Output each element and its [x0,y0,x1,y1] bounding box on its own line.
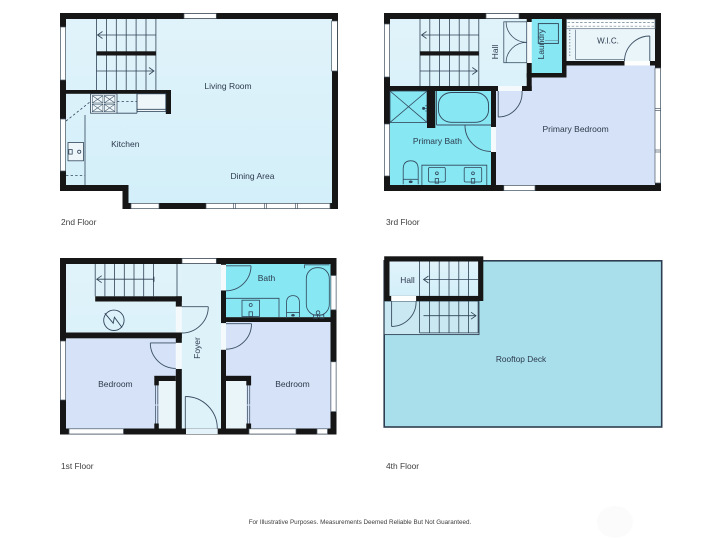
svg-text:Hall: Hall [400,275,415,285]
svg-text:1st Floor: 1st Floor [61,461,94,471]
svg-text:Bedroom: Bedroom [98,379,133,389]
svg-text:Rooftop Deck: Rooftop Deck [496,354,547,364]
svg-text:W.I.C.: W.I.C. [597,36,619,45]
svg-text:2nd Floor: 2nd Floor [61,217,97,227]
svg-text:Foyer: Foyer [192,337,202,359]
svg-text:3rd Floor: 3rd Floor [386,217,420,227]
svg-text:Primary Bath: Primary Bath [413,136,462,146]
svg-text:Laundry: Laundry [536,28,546,59]
svg-text:Bedroom: Bedroom [275,379,310,389]
svg-text:For Illustrative Purposes. Mea: For Illustrative Purposes. Measurements … [249,519,472,526]
svg-text:Bath: Bath [258,273,276,283]
svg-text:Dining Area: Dining Area [231,171,275,181]
svg-text:Kitchen: Kitchen [111,139,140,149]
svg-text:4th Floor: 4th Floor [386,461,419,471]
svg-text:Living Room: Living Room [204,81,251,91]
svg-text:Primary Bedroom: Primary Bedroom [543,124,609,134]
svg-text:Hall: Hall [490,45,500,60]
